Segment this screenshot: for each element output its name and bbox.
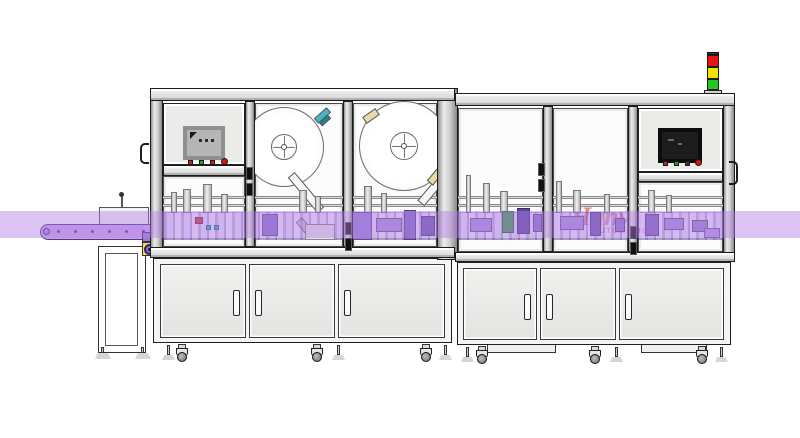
pneumatic-actuator xyxy=(466,175,471,213)
machine-bed-rail xyxy=(458,196,723,199)
signal-yellow-light xyxy=(707,67,719,79)
leveling-foot-stem xyxy=(615,347,618,357)
pneumatic-actuator xyxy=(364,186,372,213)
pneumatic-actuator xyxy=(221,194,228,213)
door-hinge xyxy=(538,179,545,192)
leveling-foot-stem xyxy=(720,347,723,357)
panel-button xyxy=(685,161,690,166)
machine-part xyxy=(517,208,530,234)
cabinet-door xyxy=(338,264,445,338)
pneumatic-actuator xyxy=(315,196,321,213)
door-handle xyxy=(344,290,351,316)
screen-glare xyxy=(678,143,682,145)
screen-pixel-dot xyxy=(205,139,208,142)
machine-part xyxy=(352,212,372,240)
leveling-foot-stem xyxy=(167,345,170,355)
machine-part xyxy=(704,228,720,238)
reel-center xyxy=(281,144,287,150)
leveling-foot-stem xyxy=(337,345,340,355)
caster-wheel xyxy=(590,354,600,364)
door-hinge xyxy=(630,242,637,255)
base-platform xyxy=(487,344,556,353)
frame-beam xyxy=(150,247,455,258)
pneumatic-actuator xyxy=(648,190,655,213)
reel-center xyxy=(401,143,407,149)
machine-part xyxy=(502,211,514,233)
frame-beam xyxy=(163,165,245,176)
infeed-sensor-tip xyxy=(119,192,124,197)
door-hinge xyxy=(538,163,545,176)
conveyor-foot-base xyxy=(95,353,111,359)
hmi-screen-right xyxy=(660,130,700,161)
conveyor-foot-stem xyxy=(101,347,104,353)
machine-part xyxy=(195,217,203,224)
leveling-foot-base xyxy=(332,355,345,360)
conveyor-foot-stem xyxy=(141,347,144,353)
machine-part xyxy=(404,210,416,240)
leveling-foot-base xyxy=(461,357,474,362)
exterior-door-handle xyxy=(729,161,738,185)
machine-part xyxy=(560,216,584,230)
machine-part xyxy=(615,218,625,232)
machine-part xyxy=(376,218,402,232)
belt-dot xyxy=(91,230,94,233)
caster-wheel xyxy=(312,352,322,362)
conveyor-end-roller xyxy=(43,228,50,235)
caster-wheel xyxy=(477,354,487,364)
frame-beam xyxy=(150,88,455,101)
frame-post xyxy=(437,88,458,260)
machine-part xyxy=(305,224,335,240)
machine-part xyxy=(214,225,219,230)
frame-beam xyxy=(455,252,735,262)
belt-dot xyxy=(74,230,77,233)
pneumatic-actuator xyxy=(500,191,508,213)
door-hinge xyxy=(345,238,352,251)
labeling-machine-line-drawing: Hanvi AUTOMATION xyxy=(0,0,800,438)
pneumatic-actuator xyxy=(556,181,562,213)
belt-dot xyxy=(142,230,145,233)
pneumatic-actuator xyxy=(573,190,581,213)
door-handle xyxy=(524,294,531,320)
machine-part xyxy=(262,214,278,236)
door-handle xyxy=(233,290,240,316)
belt-dot xyxy=(108,230,111,233)
pneumatic-actuator xyxy=(381,193,387,213)
screen-pixel-dot xyxy=(211,139,214,142)
frame-post xyxy=(150,88,163,258)
emergency-button xyxy=(221,158,228,165)
door-hinge xyxy=(246,167,253,180)
leveling-foot-stem xyxy=(444,345,447,355)
machine-part xyxy=(470,218,492,232)
leveling-foot-base xyxy=(715,357,728,362)
pneumatic-actuator xyxy=(171,192,177,213)
door-hinge xyxy=(630,226,637,239)
screen-glare xyxy=(668,139,674,141)
exterior-door-handle xyxy=(140,143,149,164)
panel-button xyxy=(199,160,204,165)
leveling-foot-base xyxy=(610,357,623,362)
panel-button xyxy=(188,160,193,165)
caster-wheel xyxy=(421,352,431,362)
door-handle xyxy=(546,294,553,320)
pneumatic-actuator xyxy=(203,184,212,213)
machine-part xyxy=(645,214,659,236)
machine-part xyxy=(533,214,542,232)
machine-part xyxy=(664,218,684,230)
door-hinge xyxy=(345,222,352,235)
cursor-arrow-icon xyxy=(190,132,197,139)
conveyor-foot-base xyxy=(135,353,151,359)
leveling-foot-stem xyxy=(466,347,469,357)
machine-part xyxy=(206,225,211,230)
panel-button xyxy=(663,161,668,166)
pneumatic-actuator xyxy=(604,194,610,213)
signal-red-light xyxy=(707,55,719,67)
belt-dot xyxy=(57,230,60,233)
belt-dot xyxy=(125,230,128,233)
pneumatic-actuator xyxy=(483,183,490,213)
pneumatic-actuator xyxy=(666,195,672,213)
frame-beam xyxy=(638,172,723,182)
pneumatic-actuator xyxy=(183,189,191,213)
panel-button xyxy=(674,161,679,166)
door-handle xyxy=(625,294,632,320)
panel-button xyxy=(210,160,215,165)
screen-pixel-dot xyxy=(199,139,202,142)
machine-part xyxy=(590,212,601,236)
leveling-foot-base xyxy=(162,355,175,360)
leveling-foot-base xyxy=(439,355,452,360)
caster-wheel xyxy=(177,352,187,362)
door-handle xyxy=(255,290,262,316)
frame-beam xyxy=(455,93,735,106)
door-hinge xyxy=(246,183,253,196)
machine-part xyxy=(421,216,435,236)
pneumatic-actuator xyxy=(299,190,307,213)
infeed-fixture-box xyxy=(99,207,149,225)
conveyor-stand-opening xyxy=(105,253,138,346)
cabinet-door xyxy=(619,268,724,340)
caster-wheel xyxy=(697,354,707,364)
emergency-button xyxy=(695,159,702,166)
signal-green-light xyxy=(707,79,719,90)
